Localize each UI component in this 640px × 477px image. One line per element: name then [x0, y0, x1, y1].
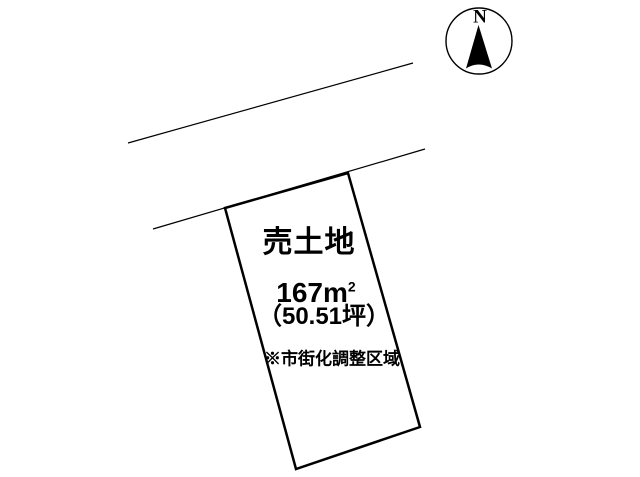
area-tsubo-label: （50.51坪）	[258, 305, 390, 329]
area-sqm-exponent: 2	[348, 279, 356, 295]
road-boundary-line-upper	[128, 63, 413, 143]
land-plot-diagram: N 売土地 167m2 （50.51坪） ※市街化調整区域	[0, 0, 640, 477]
plot-title-label: 売土地	[263, 228, 356, 258]
zoning-note-label: ※市街化調整区域	[264, 351, 400, 368]
compass-north-label: N	[473, 8, 487, 27]
